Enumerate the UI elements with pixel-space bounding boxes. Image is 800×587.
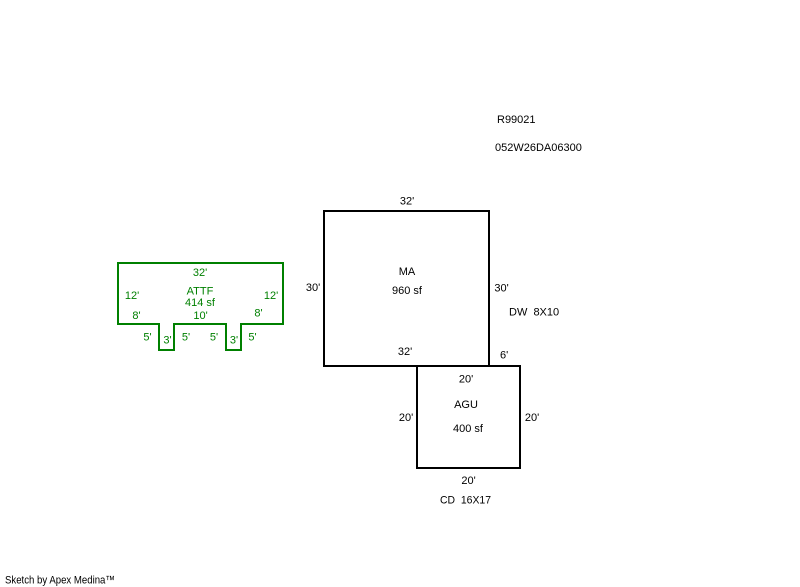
svg-text:20': 20' [399, 412, 413, 424]
svg-text:R99021: R99021 [497, 114, 536, 126]
svg-text:20': 20' [461, 475, 475, 487]
svg-text:20': 20' [459, 374, 473, 386]
svg-text:5': 5' [182, 332, 190, 344]
svg-text:MA: MA [399, 266, 416, 278]
svg-text:30': 30' [494, 283, 508, 295]
svg-text:20': 20' [525, 412, 539, 424]
svg-text:10': 10' [193, 310, 207, 322]
svg-text:400 sf: 400 sf [453, 423, 484, 435]
svg-text:8': 8' [132, 310, 140, 322]
svg-text:12': 12' [125, 290, 139, 302]
svg-text:12': 12' [264, 290, 278, 302]
svg-text:6': 6' [500, 350, 508, 362]
svg-text:AGU: AGU [454, 399, 478, 411]
svg-text:CD 16X17: CD 16X17 [440, 495, 491, 507]
svg-text:Sketch by Apex Medina™: Sketch by Apex Medina™ [5, 575, 115, 587]
svg-text:32': 32' [400, 196, 414, 208]
svg-text:32': 32' [398, 346, 412, 358]
svg-text:5': 5' [143, 332, 151, 344]
svg-text:5': 5' [248, 332, 256, 344]
svg-text:3': 3' [163, 335, 171, 347]
svg-text:960 sf: 960 sf [392, 285, 423, 297]
svg-text:052W26DA06300: 052W26DA06300 [495, 142, 582, 154]
svg-text:ATTF: ATTF [187, 286, 214, 298]
svg-text:8': 8' [254, 308, 262, 320]
svg-text:414 sf: 414 sf [185, 297, 216, 309]
svg-text:DW 8X10: DW 8X10 [509, 307, 559, 319]
svg-text:3': 3' [230, 335, 238, 347]
svg-text:30': 30' [306, 282, 320, 294]
svg-text:32': 32' [193, 267, 207, 279]
svg-text:5': 5' [210, 332, 218, 344]
